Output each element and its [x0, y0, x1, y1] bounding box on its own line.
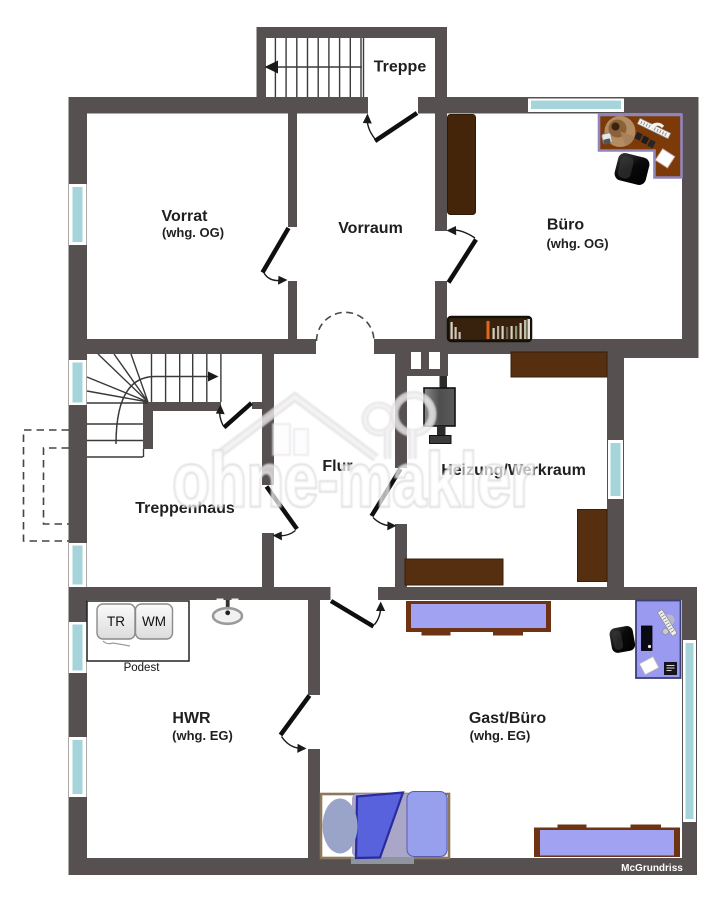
svg-text:TR: TR: [107, 614, 125, 629]
svg-text:Vorrat: Vorrat: [162, 208, 209, 225]
svg-text:HWR: HWR: [172, 710, 211, 727]
svg-text:McGrundriss: McGrundriss: [621, 863, 683, 874]
svg-text:Büro: Büro: [547, 217, 585, 234]
svg-text:ohne-makler: ohne-makler: [173, 438, 535, 523]
svg-text:WM: WM: [142, 614, 166, 629]
svg-text:(whg. OG): (whg. OG): [162, 225, 224, 240]
svg-text:(whg. EG): (whg. EG): [470, 728, 531, 743]
svg-text:Treppe: Treppe: [374, 59, 427, 76]
svg-text:Vorraum: Vorraum: [338, 220, 403, 237]
svg-text:Gast/Büro: Gast/Büro: [469, 710, 547, 727]
svg-text:Podest: Podest: [124, 662, 161, 674]
svg-text:(whg. OG): (whg. OG): [546, 236, 608, 251]
svg-text:(whg. EG): (whg. EG): [172, 728, 233, 743]
